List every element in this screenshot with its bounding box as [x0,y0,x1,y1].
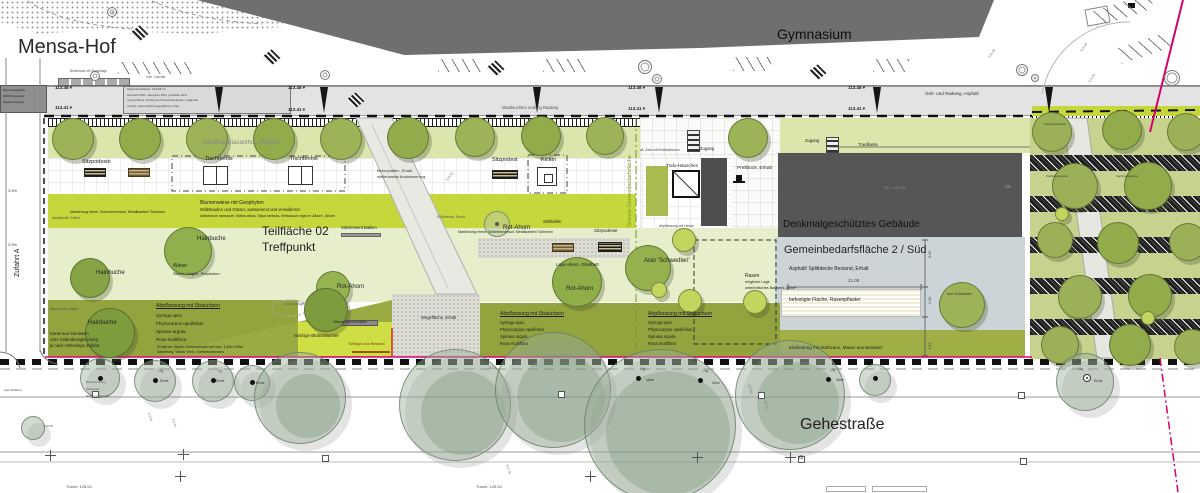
paving-note-3: ungerichteter Verband mit Natursteinkant… [127,99,198,102]
kante-label-2: oder Geländeangleichung [50,338,98,342]
wegeflaeche-label: Wegefläche, Erhalt [421,316,456,320]
pct-label-1: 3.5% [8,189,17,193]
site-plan: Mensa-HofGymnasiumGehestraßeTeilfläche 0… [0,0,1200,493]
street-elev-1: 112.84 [747,384,753,395]
darkbox-note-2: 30/30/8 'gestockt' [3,95,25,98]
kicker-label: Kicker [541,158,556,164]
elev-113-48-b: 113.48 ▾ [288,86,305,91]
street-note-3: Radbügel Bestand [86,395,109,398]
stelltafeln-label: Stelltafeln [543,220,561,224]
geh-radweg-label: Geh- und Radweg, Asphalt [925,92,979,97]
sitzpodeste-label-1: Sitzpodeste [82,160,111,166]
dim-420-label: 4.20 [929,297,933,304]
asphalt-splitt-label: Asphalt/ Splittdecke Bestand, Erhalt [789,267,869,272]
ulme-label-2: Ulme [712,382,720,385]
betonplatten-label-1: Betonplatten, Erhalt [377,169,412,173]
betonbank-label: Betonbank mit Sitzauflage [70,70,107,73]
abp1-rosa: Rosa multiflora [156,338,186,343]
wiese-label: Wiese [173,264,187,269]
prellbock-label: Prellbock, Erhalt [737,167,772,172]
dim-500-label: 5.00 [929,251,933,258]
gehestrasse-label: Gehestraße [800,417,884,433]
elev-113-41-c: 113.41 ▾ [628,107,645,112]
elev-113-48-c: 113.48 ▾ [628,86,645,91]
abp2-syringa: Syringa spec. [500,321,525,325]
tree-tag-2: 10g [703,370,708,373]
band-elev-1: 113.40 [988,49,997,59]
tischtennis-label-2: Tischtennis [290,157,318,163]
paving-note-4: verlegt, Gesamtbild ausgeglichen ruhig [127,105,179,108]
sitzpodeste-label-2: Sitzpodeste [594,229,618,234]
vorh-leuchte-label: vorh. Leuchte [146,76,165,79]
band-elev-4: 113.57 [525,119,534,129]
labels-layer: Mensa-HofGymnasiumGehestraßeTeilfläche 0… [0,0,1200,493]
hainbuche-label-1: Hainbuche [96,270,125,276]
kante-label-3: je nach Höhenlage Zufahrt [50,344,99,348]
abpflanzung-header-2: Abpflanzung mit Sträuchern [500,312,564,317]
wiese-sub-label: Sitzen, Liegen, Picknicken [173,272,220,276]
abp1-syringa: Syringa spec. [156,314,183,319]
einfriedung-label: Einfriedung mit Stahlzaun, Mauer aus Bes… [789,346,882,351]
sophora-tag-3: Sophora japonica [1044,123,1066,126]
dim-2108-label: 21.08 [848,279,859,284]
gemeinbedarfsflaeche-label: Gemeinbedarfsfläche 2 / Süd [784,245,926,256]
abp2-physocarpus: Physocarpus opulifolius [500,328,544,332]
tischtennis-label-1: Tischtennis [205,157,233,163]
gymnasium-label: Gymnasium [777,27,852,41]
abpflanzung-header-3: Abpflanzung mit Sträuchern [648,312,712,317]
hecke-label: Abpflanzung mit Hecke [659,225,694,228]
markierung-label-2: Markierung ehem. Schienenverlauf, Metall… [458,231,553,235]
rasen-sub-label-1: mögliche Lage [745,281,770,285]
mastleuchten-label: Mastleuchten entlang Radweg [502,106,558,110]
huegel-label: Ansaathügel [284,303,305,307]
abp3-spiraea: Spiraea arguta [648,335,675,339]
dim-423-label: 4.23 [929,343,933,350]
hainbuche-label-2: Hainbuche [197,236,226,242]
gleditsia-label: Gleditsia triacanthos 'Skyline' [203,140,281,146]
befestigte-label: befestigte Fläche, Rasenpflaster [789,298,861,303]
treffpunkt-label: Treffpunkt [262,241,315,253]
rot-ahorn-label-3: Rot-Ahorn [566,286,593,292]
zugang-label-2: Zugang [805,139,819,143]
zaun-label: alt. Zaun mit Kletterpflanzen [640,149,680,152]
mastleuchte-zufahrt-label-1: Mastleuchte Zufahrt [52,217,80,220]
lage-gleisbett-label: Lage ehem. Gleisbett [556,263,599,268]
street-note-5: 113.96 [44,425,53,428]
band-elev-5: 113.52 [446,172,455,182]
fb-label: Fb = 113.09 [884,186,905,190]
tree-tag-3: 12g [830,369,835,372]
mensa-hof-label: Mensa-Hof [18,37,116,57]
abp3-physocarpus: Physocarpus opulifolius [648,328,692,332]
blumenwiese-label-2: Wildstauden und Gräser, aussamend und ve… [200,208,300,212]
darkbox-note-1: Betonsteinpflaster [3,89,25,92]
abp1-spiraea: Spiraea arguta [156,330,186,335]
teilflaeche-02-label: Teilfläche 02 [262,225,329,237]
tree-tag-1: 13g [640,368,645,371]
abp2-spiraea: Spiraea arguta [500,335,527,339]
street-elev-6: 112.91 [171,418,177,428]
elev-113-41-a: 113.41 ▾ [55,106,72,111]
ulme-label-1: Ulme [646,379,654,382]
niedrige-blueh-label: niedrige Blühsträucher [294,334,339,339]
zugang-label-1: Zugang [700,147,714,151]
pct-label-2: 3.5% [8,243,17,247]
traufe-label-1: Traufe: 128.54 [66,485,92,489]
eiche-label-2: Eiche [216,380,224,383]
abp3-rosa: Rosa multiflora [648,342,676,346]
street-note-2: Sinkkasten [86,388,100,391]
betonplatten-label-2: stellenweise Ausbesserung [377,175,425,179]
paving-note-2: anthrazit 50%, naturgrau 30%, graublau 2… [127,94,187,97]
tree-tag-6: 7g [218,370,222,373]
abp2-rosa: Rosa multiflora [500,342,528,346]
darkbox-note-3: Wegeverbindung [3,101,24,104]
street-elev-3: 112.75 [505,464,511,475]
blumenwiese-label-3: Anthericum ramosum, Malva alcea, Stipa b… [200,215,335,219]
abp1-physocarpus: Physocarpus opulifolius [156,322,203,327]
plus-g-label: G [799,456,803,461]
acer-schwedleri-label-1: Acer 'Schwedleri' [644,258,690,264]
acer-schwedleri-label-2: Acer Schwedleri [947,293,972,296]
sitzelement-label-1: Sitzelement Balken [341,226,377,230]
tree-tag-4: 11g [1078,368,1083,371]
kante-label-1: Kante aus Sandstein [50,332,89,336]
street-note-1: Bordabsenkung [86,381,106,384]
trafo-label: Trafo-Häuschen [666,164,698,169]
paving-note-1: Natursteinpflaster 10/10/8 cm [127,88,166,91]
sitzpodest-label: Sitzpodest [492,158,518,164]
street-elev-4: 113.8 [488,367,496,370]
street-elev-5: 112.81 [147,412,153,422]
elev-113-41-d: 113.41 ▾ [848,107,865,112]
zufahrt-a-label: Zufahrt A [14,249,21,277]
suesskirsche-label: Süßkirsche, Erhalt [437,216,465,219]
elev-113-48-d: 113.48 ▾ [848,86,865,91]
rot-ahorn-label-2: Rot-Ahorn [503,225,530,231]
street-elev-2: 112.91 [763,400,769,411]
sitzelement-label-2: Sitzelement Balken [333,320,367,324]
ulme-label-3: Ulme [836,379,844,382]
denkmal-label: Denkmalgeschütztes Gebäude [783,220,920,230]
rot-ahorn-label-1: Rot-Ahorn [337,284,364,290]
sophora-tag-2: Sophora japonica [1116,175,1138,178]
traufkante-label: Traufkante [858,143,878,147]
abp3-syringa: Syringa spec. [648,321,673,325]
traufe-label-2: Traufe: 128.52 [476,485,502,489]
sophora-tag-1: Sophora japonica [1046,175,1068,178]
blumenwiese-label-1: Blumenwiese mit Geophyten [200,201,264,206]
rasen-label: Rasen [745,274,759,279]
eiche-label-4: Eiche [1094,380,1102,383]
rasen-sub-label-2: unterirdisches Bauwerk 160m² [745,287,796,291]
hainbuche-label-3: Hainbuche [88,320,117,326]
band-elev-2: 113.46 [1080,43,1089,53]
grenze-label: Grenze Gemeinbedarfsfläche [628,155,634,227]
street-note-4: Asphaltfläche [4,389,22,392]
torfluegel-label: Torflügel aus Bestand [348,343,385,347]
eiche-label-1: Eiche [160,380,168,383]
markierung-label-1: Markierung ehem. Schienenverlauf, Metall… [70,211,165,215]
erhalt-mauer-label-2: Sanierung, Wilder Wein, Kletterhortensie… [157,351,224,355]
elev-113-48-a: 113.48 ▾ [55,86,72,91]
mastleuchte-zufahrt-label-2: Mastleuchte Zufahrt [50,308,78,311]
abpflanzung-header-1: Abpflanzung mit Sträuchern [156,304,220,309]
sd-label: SD [1005,185,1011,190]
elev-113-41-b: 113.41 ▾ [288,108,305,113]
band-elev-3: 113.35 [1088,74,1097,84]
eiche-label-3: Eiche [256,382,264,385]
tree-tag-5: 14g [158,370,163,373]
